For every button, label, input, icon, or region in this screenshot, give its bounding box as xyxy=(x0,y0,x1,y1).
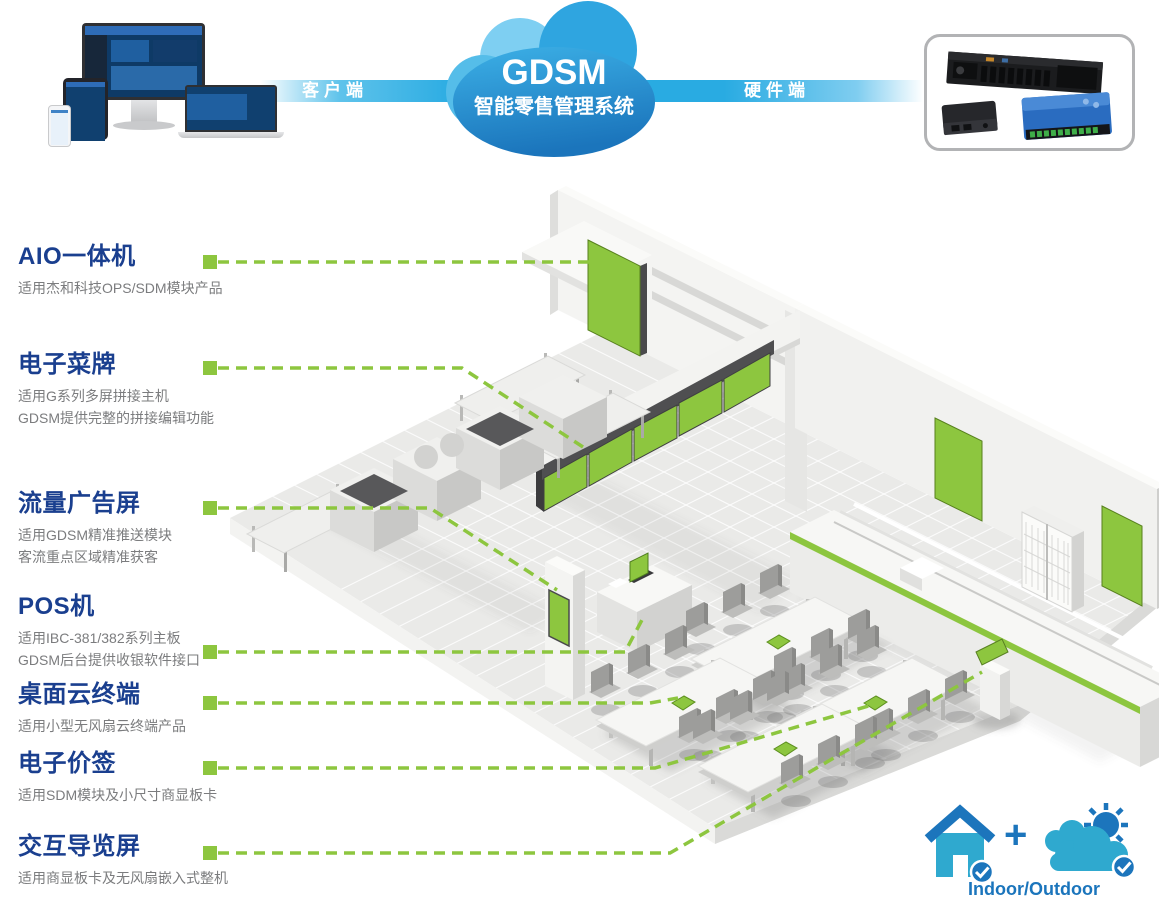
indoor-outdoor-block: + Indoor/Outdoor xyxy=(912,793,1156,903)
laptop-device xyxy=(178,85,284,140)
client-band-label: 客户端 xyxy=(302,80,368,102)
cloud-subtitle: 智能零售管理系统 xyxy=(474,94,634,118)
hardware-devices-panel xyxy=(924,34,1135,151)
annotation-markers xyxy=(203,255,217,860)
monitor-stand xyxy=(131,100,157,122)
cloud-title: GDSM xyxy=(502,53,607,92)
gdsm-retail-infographic: { "header": { "client_band_label": "客户端"… xyxy=(0,0,1159,904)
indoor-outdoor-label: Indoor/Outdoor xyxy=(912,879,1156,900)
iot-gateway xyxy=(1021,92,1112,140)
gdsm-cloud: GDSM 智能零售管理系统 xyxy=(428,0,678,162)
hardware-band-label: 硬件端 xyxy=(744,80,810,102)
plus-sign: + xyxy=(1004,815,1027,855)
monitor-base xyxy=(113,121,175,130)
house-icon xyxy=(920,799,1000,885)
phone-device xyxy=(48,105,71,147)
rack-server xyxy=(946,51,1103,94)
client-devices-illustration xyxy=(45,15,285,150)
hardware-devices-illustration xyxy=(927,37,1132,148)
pillar-ad-screen xyxy=(545,556,585,700)
cloud-sun-icon xyxy=(1036,799,1142,885)
cloud-icon: GDSM 智能零售管理系统 xyxy=(428,0,678,162)
mini-pc xyxy=(941,101,997,136)
